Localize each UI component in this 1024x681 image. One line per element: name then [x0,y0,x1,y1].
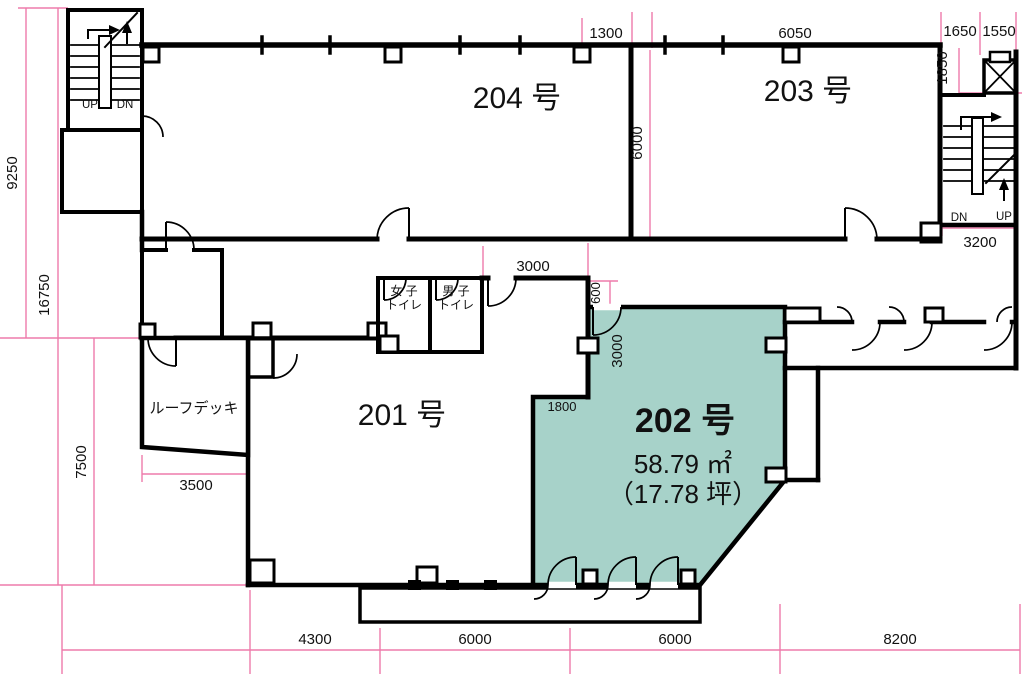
dim-top-1550: 1550 [982,23,1015,40]
toilet-men-label-2: トイレ [438,298,474,312]
balcony [360,588,700,622]
left-stair-up-label: UP [82,99,98,111]
left-stair-dn-label: DN [117,99,134,111]
room-label-203: 203 号 [764,75,852,108]
left-stair-lobby [62,130,142,212]
room-label-204: 204 号 [473,82,561,115]
right-stair-stringer [972,118,983,194]
dim-toilet-3000: 3000 [516,258,549,275]
room-label-201: 201 号 [358,399,446,432]
dim-right-3200: 3200 [963,234,996,251]
dim-bottom-6000-a: 6000 [458,631,491,648]
dim-top-6050: 6050 [778,25,811,42]
dim-right-1850: 1850 [934,51,951,84]
left-dn-arrow-icon [122,21,132,44]
dim-top-1650: 1650 [943,23,976,40]
dim-left-7500: 7500 [73,445,90,478]
dim-step-1800: 1800 [548,399,577,414]
top-columns [143,47,799,62]
dim-deck-3500: 3500 [179,477,212,494]
room-202-area-m2: 58.79 ㎡ [634,449,732,479]
dim-bottom-4300: 4300 [298,631,331,648]
dim-mid-6000: 6000 [629,126,646,159]
dim-entry-3000: 3000 [609,334,626,367]
dim-entry-600: 600 [588,282,603,304]
room-202-area-tsubo: （17.78 坪） [608,479,758,509]
right-stair-dn-label: DN [951,212,968,224]
room-label-202: 202 号 [635,402,735,440]
toilet-men-label-1: 男 子 [442,284,469,298]
roof-deck-outline [142,338,248,455]
room-202-area [533,307,785,585]
toilet-women-label-1: 女 子 [390,283,417,298]
roof-deck-label: ルーフデッキ [149,399,238,417]
dim-bottom-6000-b: 6000 [658,631,691,648]
dim-left-9250: 9250 [4,156,21,189]
dim-bottom-8200: 8200 [883,631,916,648]
elevator [984,52,1016,93]
toilet-women-label-2: トイレ [386,298,422,312]
room-201-walls [248,338,533,590]
dim-top-1300: 1300 [589,25,622,42]
floor-plan: 204 号 203 号 201 号 202 号 58.79 ㎡ （17.78 坪… [0,0,1024,681]
right-strip [785,308,1016,480]
dim-left-16750: 16750 [36,274,53,316]
right-stair-up-label: UP [996,211,1012,223]
